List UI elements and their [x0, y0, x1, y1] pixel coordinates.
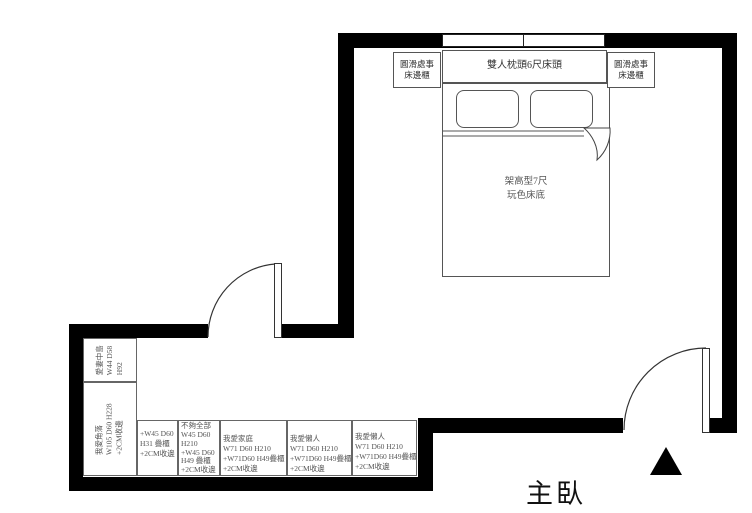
headboard-label: 雙人枕頭6尺床頭	[487, 60, 562, 73]
pillow-left	[456, 90, 519, 128]
window-pane-left	[442, 34, 524, 47]
cabinet-corner-label: 我愛角落 W105 D60 H228 +2CM收邊	[95, 403, 125, 455]
wall-door2-jamb	[706, 418, 737, 433]
window-pane-right	[523, 34, 605, 47]
cabinet-cell-1: +W45 D60 H31 疊櫃 +2CM收邊	[137, 420, 178, 476]
wall-bottom-right	[418, 418, 623, 433]
cabinet-island-label: 愛妻中島 W44 D58 H92	[95, 345, 125, 375]
cabinet-island: 愛妻中島 W44 D58 H92	[83, 338, 137, 382]
wall-upper-left-vertical	[338, 33, 354, 338]
bed-base-label: 架高型7尺 玩色床底	[442, 176, 610, 204]
cabinet-cell-5: 我愛懶人 W71 D60 H210 +W71D60 H49疊櫃 +2CM收邊	[352, 420, 417, 476]
door-leaf-right	[702, 348, 710, 433]
floor-plan: 雙人枕頭6尺床頭 圓滑處事 床邊櫃 圓滑處事 床邊櫃 架高型7尺 玩色床底 愛妻…	[0, 0, 752, 513]
nightstand-right-label-line2: 床邊櫃	[618, 70, 644, 81]
cabinet-cell-2: 不夠全部 W45 D60 H210 +W45 D60 H49 疊櫃 +2CM收邊	[178, 420, 220, 476]
nightstand-left: 圓滑處事 床邊櫃	[393, 52, 441, 88]
nightstand-right: 圓滑處事 床邊櫃	[607, 52, 655, 88]
nightstand-left-label-line2: 床邊櫃	[404, 70, 430, 81]
nightstand-right-label-line1: 圓滑處事	[614, 59, 648, 70]
door-swing-arc-left	[208, 264, 275, 337]
wall-left	[69, 324, 83, 491]
door-leaf-left	[274, 263, 282, 338]
bed-base-label-line2: 玩色床底	[442, 190, 610, 204]
entry-marker-triangle	[650, 447, 682, 475]
wall-mid-horizontal-a	[69, 324, 208, 338]
cabinet-cell-3: 我愛家庭 W71 D60 H210 +W71D60 H49疊櫃 +2CM收邊	[220, 420, 287, 476]
door-swing-arc-right	[624, 348, 706, 430]
room-label: 主臥	[526, 472, 586, 511]
nightstand-left-label-line1: 圓滑處事	[400, 59, 434, 70]
bed-base-label-line1: 架高型7尺	[442, 176, 610, 190]
wall-mid-horizontal-b	[282, 324, 354, 338]
cabinet-corner: 我愛角落 W105 D60 H228 +2CM收邊	[83, 382, 137, 476]
wall-bottom-left	[69, 477, 433, 491]
wall-right	[722, 33, 737, 433]
cabinet-cell-4: 我愛懶人 W71 D60 H210 +W71D60 H49疊櫃 +2CM收邊	[287, 420, 352, 476]
pillow-right	[530, 90, 593, 128]
headboard: 雙人枕頭6尺床頭	[442, 50, 607, 83]
